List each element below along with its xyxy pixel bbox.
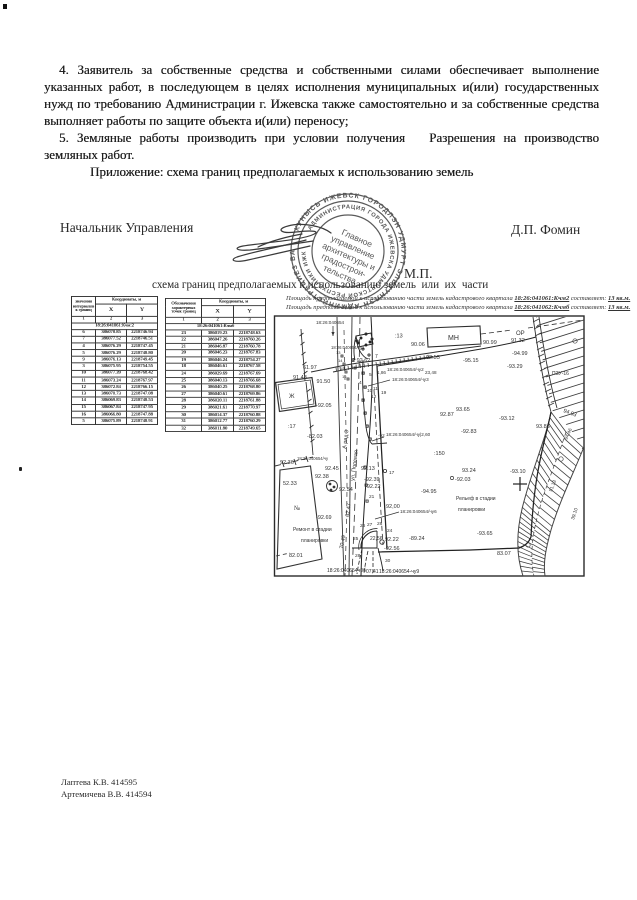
- svg-text:18:26:040654/чу: 18:26:040654/чу: [297, 456, 329, 461]
- svg-text:-94.99: -94.99: [512, 351, 528, 357]
- svg-text:-93.12: -93.12: [499, 416, 515, 422]
- svg-text:19: 19: [381, 390, 387, 396]
- svg-text:ОР: ОР: [516, 331, 525, 337]
- svg-text:28: 28: [377, 521, 383, 527]
- svg-text:Ж: Ж: [289, 394, 295, 400]
- svg-text:2 92,62: 2 92,62: [352, 358, 370, 364]
- svg-text:-93.10: -93.10: [510, 469, 526, 475]
- svg-text:61.97: 61.97: [303, 365, 317, 371]
- svg-text:14: 14: [338, 358, 343, 363]
- svg-text:82.01: 82.01: [289, 553, 303, 559]
- svg-text:планировки: планировки: [458, 507, 485, 513]
- svg-text:22,56: 22,56: [370, 536, 383, 542]
- svg-text:Рельеф в стадии: Рельеф в стадии: [456, 496, 496, 502]
- svg-text::150: :150: [434, 451, 445, 457]
- svg-text:МН: МН: [448, 335, 459, 342]
- svg-text:90.99: 90.99: [483, 340, 497, 346]
- svg-text:91.32: 91.32: [511, 338, 525, 344]
- svg-text:16: 16: [342, 374, 347, 379]
- svg-text:-92.05: -92.05: [316, 403, 332, 409]
- svg-text:-92.03: -92.03: [455, 477, 471, 483]
- svg-text:-94.95: -94.95: [421, 489, 437, 495]
- svg-text:28: 28: [355, 553, 361, 559]
- svg-text:планировки: планировки: [301, 538, 328, 544]
- svg-text:30: 30: [385, 558, 391, 564]
- svg-text:93.86: 93.86: [536, 424, 550, 430]
- svg-text:ул. Полевая: ул. Полевая: [350, 450, 360, 481]
- svg-text:18:26:040654/чу2: 18:26:040654/чу2: [387, 367, 424, 372]
- svg-text:10: 10: [367, 388, 373, 394]
- svg-text:23,48: 23,48: [425, 370, 437, 375]
- svg-text:92.55: 92.55: [426, 355, 440, 361]
- svg-text:07,41: 07,41: [366, 569, 379, 575]
- svg-text:92.45: 92.45: [325, 466, 339, 472]
- svg-text:93.65: 93.65: [456, 407, 470, 413]
- svg-text:27: 27: [367, 522, 373, 528]
- svg-text:-92.83: -92.83: [461, 429, 477, 435]
- svg-text:-93.29: -93.29: [507, 364, 523, 370]
- svg-text:91.50: 91.50: [317, 379, 331, 385]
- svg-text:39.10: 39.10: [570, 507, 580, 521]
- svg-text:18:26:040654/чу|2,60: 18:26:040654/чу|2,60: [386, 432, 431, 437]
- svg-text:94.46: 94.46: [563, 427, 574, 441]
- svg-text:92.54: 92.54: [339, 487, 353, 493]
- svg-text:92.36: 92.36: [280, 460, 294, 466]
- svg-text:-82.03: -82.03: [307, 434, 323, 440]
- svg-text:21: 21: [369, 494, 375, 500]
- svg-text:15: 15: [340, 366, 345, 371]
- svg-text:18:26:040654/чу3: 18:26:040654/чу3: [392, 377, 429, 382]
- svg-text:5: 5: [369, 372, 372, 378]
- svg-text:-93.65: -93.65: [477, 531, 493, 537]
- svg-text:18:26:040654-чу9: 18:26:040654-чу9: [379, 569, 419, 575]
- svg-text:-92.56: -92.56: [384, 546, 400, 552]
- svg-text:93.24: 93.24: [462, 468, 476, 474]
- svg-text:11: 11: [373, 386, 378, 392]
- svg-text:-89.24: -89.24: [409, 536, 425, 542]
- svg-text:18:26:040654: 18:26:040654: [316, 320, 345, 325]
- svg-text:92.13: 92.13: [361, 466, 375, 472]
- svg-text:26: 26: [360, 523, 366, 529]
- svg-text:7: 7: [375, 354, 378, 360]
- svg-text:52.33: 52.33: [283, 481, 297, 487]
- svg-text:ПЗУ-16: ПЗУ-16: [552, 371, 569, 377]
- svg-text:94.03: 94.03: [562, 408, 577, 418]
- svg-text:90.06: 90.06: [411, 342, 425, 348]
- svg-text:24: 24: [387, 528, 393, 534]
- svg-text:13: 13: [336, 350, 341, 355]
- svg-text:-92.69: -92.69: [316, 515, 332, 521]
- svg-text:92.22: 92.22: [385, 537, 399, 543]
- svg-text:91.13: 91.13: [548, 479, 558, 493]
- svg-text::17: :17: [288, 424, 296, 430]
- svg-text:92.38: 92.38: [315, 474, 329, 480]
- svg-text:92,00: 92,00: [386, 504, 400, 510]
- svg-text:12: 12: [371, 394, 377, 400]
- svg-text:1,86: 1,86: [377, 370, 386, 375]
- svg-text:92.87: 92.87: [440, 412, 454, 418]
- svg-text:-95.15: -95.15: [463, 358, 479, 364]
- svg-text:№: №: [294, 505, 300, 512]
- svg-text:-92.39: -92.39: [364, 477, 380, 483]
- svg-text:91.48: 91.48: [293, 375, 307, 381]
- svg-text:А ряд 3: А ряд 3: [342, 430, 350, 450]
- svg-text:4: 4: [359, 380, 362, 386]
- svg-text::13: :13: [395, 334, 403, 340]
- svg-text:Ремонт в стадии: Ремонт в стадии: [293, 527, 332, 533]
- svg-text:62.47: 62.47: [345, 503, 353, 517]
- svg-text:25: 25: [353, 536, 359, 542]
- svg-text:18:26:040654ч0б: 18:26:040654ч0б: [327, 568, 366, 574]
- svg-text:18:26:040654/чу6: 18:26:040654/чу6: [400, 509, 437, 514]
- svg-text:17: 17: [389, 470, 395, 476]
- svg-text:83.07: 83.07: [497, 551, 511, 557]
